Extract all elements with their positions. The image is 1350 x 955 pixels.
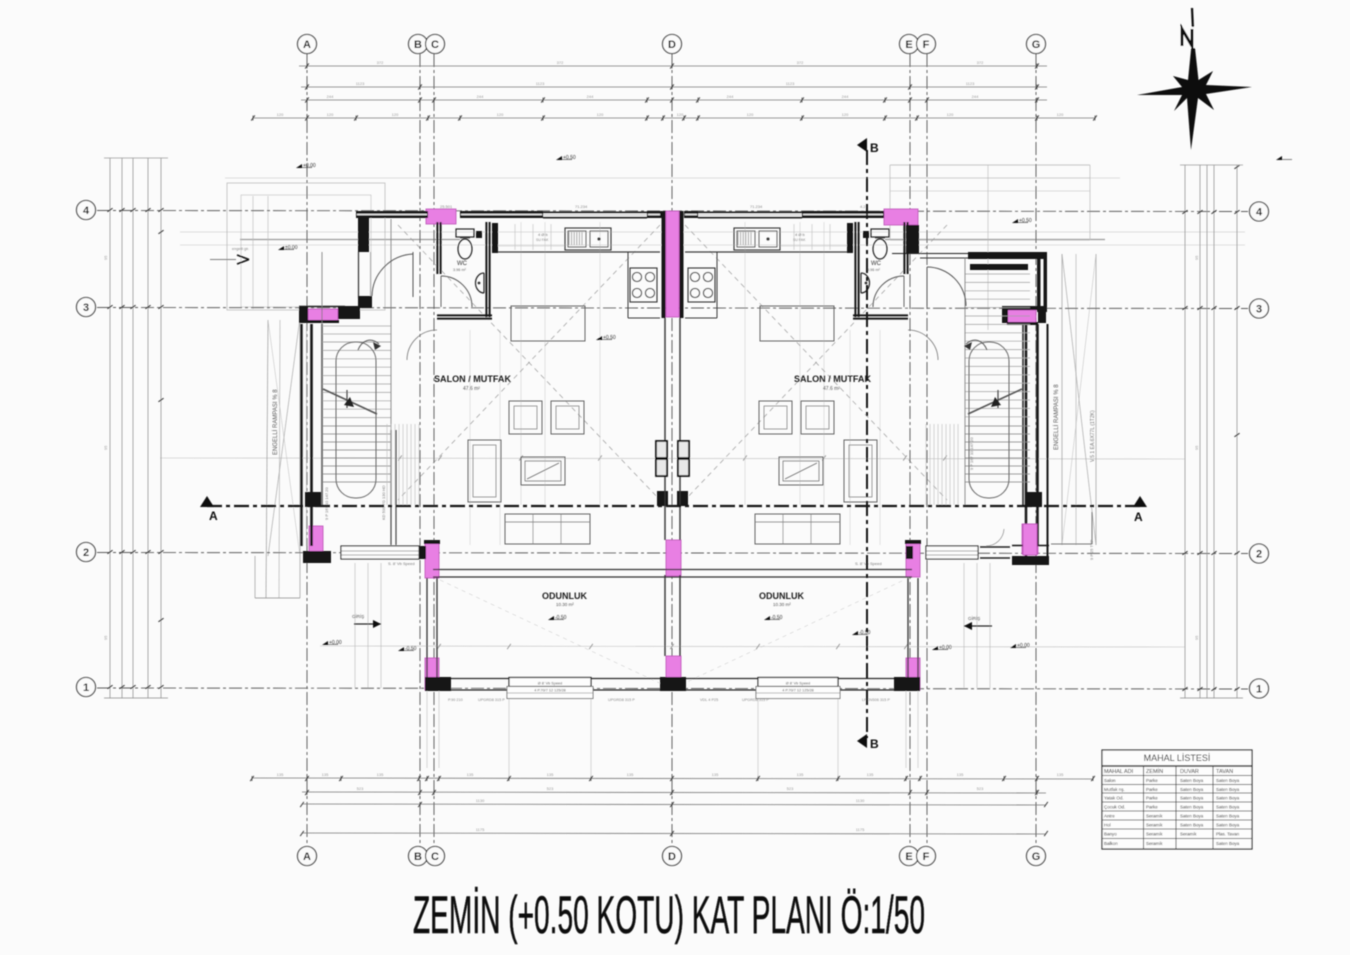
svg-text:-0.50: -0.50 (859, 630, 871, 636)
svg-text:SALON / MUTFAK: SALON / MUTFAK (434, 374, 511, 385)
svg-text:Salon: Salon (1104, 778, 1116, 783)
svg-text:9 P 167 10 147.20: 9 P 167 10 147.20 (324, 487, 329, 520)
svg-text:47.6 m²: 47.6 m² (823, 386, 840, 392)
svg-text:A: A (303, 851, 311, 863)
svg-text:120: 120 (947, 112, 954, 117)
svg-text:C: C (431, 851, 439, 863)
svg-text:ENGELLİ RAMPASI % 8: ENGELLİ RAMPASI % 8 (1053, 384, 1060, 450)
svg-text:4: 4 (1256, 207, 1263, 219)
svg-text:4 Ø b: 4 Ø b (538, 232, 549, 237)
svg-text:Saten Boya: Saten Boya (1216, 778, 1240, 783)
svg-text:120: 120 (327, 112, 334, 117)
svg-text:Ø 8' Vb Speed: Ø 8' Vb Speed (538, 682, 563, 686)
svg-text:135: 135 (957, 772, 964, 777)
svg-text:B: B (414, 39, 422, 51)
svg-text:G: G (1032, 39, 1041, 51)
svg-text:B: B (870, 737, 879, 751)
svg-text:KD 500 TG 130 HD: KD 500 TG 130 HD (381, 485, 386, 520)
svg-text:4 P.70/7 12 125/28: 4 P.70/7 12 125/28 (782, 689, 814, 693)
svg-text:Antre: Antre (1104, 813, 1115, 818)
svg-text:244: 244 (587, 94, 594, 99)
svg-text:244: 244 (727, 94, 734, 99)
svg-text:UPGRD8 315 P: UPGRD8 315 P (608, 698, 635, 702)
svg-text:95: 95 (103, 635, 108, 640)
svg-text:120: 120 (842, 112, 849, 117)
svg-text:95: 95 (1194, 445, 1199, 450)
svg-text:+0.00: +0.00 (1017, 643, 1030, 649)
svg-text:WC: WC (871, 261, 882, 267)
svg-text:3: 3 (1256, 304, 1262, 316)
svg-text:VDL 4 P25: VDL 4 P25 (700, 698, 718, 702)
svg-text:523: 523 (977, 786, 984, 791)
svg-text:4: 4 (83, 205, 90, 217)
svg-text:1123: 1123 (356, 81, 365, 86)
svg-text:1130: 1130 (856, 798, 865, 803)
svg-text:135: 135 (867, 772, 874, 777)
svg-text:Saten Boya: Saten Boya (1180, 778, 1204, 783)
svg-text:135: 135 (467, 772, 474, 777)
svg-text:V.5 1 EA.6X77L (1T2K): V.5 1 EA.6X77L (1T2K) (1090, 410, 1096, 462)
svg-text:Saten Boya: Saten Boya (1216, 804, 1240, 809)
svg-text:2: 2 (83, 547, 89, 559)
svg-text:+0.00: +0.00 (939, 645, 952, 651)
svg-text:+0.50: +0.50 (563, 155, 576, 161)
svg-text:120: 120 (1057, 112, 1064, 117)
svg-text:MAHAL LİSTESİ: MAHAL LİSTESİ (1144, 753, 1211, 763)
svg-text:244: 244 (842, 94, 849, 99)
svg-text:Seramik: Seramik (1180, 831, 1197, 836)
svg-text:Parke: Parke (1146, 787, 1158, 792)
svg-text:135: 135 (322, 772, 329, 777)
svg-text:Parke: Parke (1146, 795, 1158, 800)
svg-text:1175: 1175 (856, 827, 865, 832)
svg-text:523: 523 (547, 786, 554, 791)
svg-text:ENGELLİ RAMPASI % 8: ENGELLİ RAMPASI % 8 (272, 389, 279, 455)
svg-text:Seramik: Seramik (1146, 813, 1163, 818)
svg-text:135: 135 (377, 772, 384, 777)
svg-text:95: 95 (1194, 255, 1199, 260)
svg-text:523: 523 (787, 786, 794, 791)
svg-text:Saten Boya: Saten Boya (1216, 787, 1240, 792)
svg-text:SU FAK: SU FAK (793, 238, 806, 242)
svg-text:Saten Boya: Saten Boya (1180, 795, 1204, 800)
svg-text:+0.00: +0.00 (329, 640, 342, 646)
svg-text:MAHAL ADI: MAHAL ADI (1104, 769, 1134, 775)
svg-text:A: A (303, 39, 311, 51)
svg-text:71.234: 71.234 (575, 204, 588, 209)
svg-text:244: 244 (972, 94, 979, 99)
svg-text:1123: 1123 (536, 81, 545, 86)
svg-text:G: G (1032, 851, 1041, 863)
svg-text:95: 95 (1194, 635, 1199, 640)
svg-text:3.96 m²: 3.96 m² (867, 268, 881, 272)
svg-text:372: 372 (977, 60, 984, 65)
svg-text:10.30 m²: 10.30 m² (773, 602, 791, 607)
svg-text:Saten Boya: Saten Boya (1216, 822, 1240, 827)
svg-text:engelli gir.: engelli gir. (232, 247, 249, 251)
svg-text:120: 120 (392, 112, 399, 117)
svg-text:+0.00: +0.00 (303, 163, 316, 169)
svg-text:+0.50: +0.50 (1019, 218, 1032, 224)
svg-text:135: 135 (547, 772, 554, 777)
svg-text:372: 372 (557, 60, 564, 65)
svg-text:TAVAN: TAVAN (1216, 769, 1233, 775)
svg-text:D: D (668, 851, 676, 863)
svg-text:WC: WC (457, 261, 468, 267)
svg-text:+0.50: +0.50 (603, 335, 616, 341)
svg-text:SU FAK: SU FAK (536, 238, 549, 242)
svg-text:Banyo: Banyo (1104, 831, 1117, 836)
svg-text:120: 120 (277, 112, 284, 117)
svg-text:UPGRD8 315 P: UPGRD8 315 P (742, 698, 769, 702)
svg-text:10.30 m²: 10.30 m² (556, 602, 574, 607)
svg-text:F: F (923, 39, 930, 51)
svg-text:-0.50: -0.50 (405, 646, 417, 652)
svg-text:Saten Boya: Saten Boya (1180, 813, 1204, 818)
svg-text:9 P 167 10 147.20: 9 P 167 10 147.20 (969, 437, 974, 470)
svg-text:Saten Boya: Saten Boya (1216, 841, 1240, 846)
svg-text:120: 120 (747, 112, 754, 117)
svg-text:Mutfak nş.: Mutfak nş. (1104, 787, 1125, 792)
svg-text:Saten Boya: Saten Boya (1180, 787, 1204, 792)
svg-text:-0.50: -0.50 (771, 615, 783, 621)
svg-text:95: 95 (103, 445, 108, 450)
svg-text:Plas. Tavan: Plas. Tavan (1216, 831, 1240, 836)
svg-text:244: 244 (477, 94, 484, 99)
svg-text:372: 372 (797, 60, 804, 65)
svg-text:B: B (414, 851, 422, 863)
svg-text:Saten Boya: Saten Boya (1216, 813, 1240, 818)
svg-text:ODUNLUK: ODUNLUK (542, 591, 587, 602)
svg-text:E: E (905, 851, 912, 863)
svg-text:Çocuk Od.: Çocuk Od. (1104, 804, 1125, 809)
svg-text:3: 3 (83, 302, 89, 314)
svg-text:1123: 1123 (786, 81, 795, 86)
svg-text:1175: 1175 (476, 827, 485, 832)
svg-text:120: 120 (597, 112, 604, 117)
svg-text:Saten Boya: Saten Boya (1180, 804, 1204, 809)
svg-text:ODUNLUK: ODUNLUK (759, 591, 804, 602)
svg-text:Ø 8' Vb Speed: Ø 8' Vb Speed (786, 682, 811, 686)
svg-text:F: F (923, 851, 930, 863)
svg-text:GİRİŞ: GİRİŞ (352, 613, 364, 619)
svg-text:9 P 25 TYP: 9 P 25 TYP (1089, 539, 1094, 560)
svg-text:4.2: 4.2 (860, 204, 866, 209)
svg-text:1: 1 (1256, 684, 1262, 696)
svg-text:DUVAR: DUVAR (1180, 769, 1199, 775)
svg-text:ZEMİN: ZEMİN (1146, 768, 1163, 775)
svg-text:2: 2 (1256, 549, 1262, 561)
svg-text:523: 523 (357, 786, 364, 791)
svg-text:Seramik: Seramik (1146, 831, 1163, 836)
svg-text:Parke: Parke (1146, 804, 1158, 809)
svg-text:Yatak Od.: Yatak Od. (1104, 795, 1124, 800)
svg-text:71.234: 71.234 (750, 204, 763, 209)
svg-text:P.90 210: P.90 210 (448, 698, 463, 702)
svg-text:SALON / MUTFAK: SALON / MUTFAK (794, 374, 871, 385)
svg-text:±0.00: ±0.00 (285, 245, 298, 251)
svg-text:Seramik: Seramik (1146, 841, 1163, 846)
svg-text:UPGRD8 315 P: UPGRD8 315 P (478, 698, 505, 702)
svg-text:95: 95 (103, 255, 108, 260)
svg-text:Seramik: Seramik (1146, 822, 1163, 827)
svg-text:244: 244 (327, 94, 334, 99)
svg-text:Hol: Hol (1104, 822, 1111, 827)
svg-text:4 P.70/7 12 125/28: 4 P.70/7 12 125/28 (534, 689, 566, 693)
svg-text:3.96 m²: 3.96 m² (453, 268, 467, 272)
svg-text:Parke: Parke (1146, 778, 1158, 783)
svg-text:4 Ø b: 4 Ø b (795, 232, 806, 237)
svg-text:A: A (1134, 510, 1143, 524)
svg-text:135: 135 (712, 772, 719, 777)
svg-text:1130: 1130 (476, 798, 485, 803)
svg-text:Saten Boya: Saten Boya (1180, 822, 1204, 827)
svg-text:Balkon: Balkon (1104, 841, 1118, 846)
svg-text:135: 135 (627, 772, 634, 777)
svg-text:S. 8' Vb Speed: S. 8' Vb Speed (388, 561, 415, 566)
svg-text:B: B (870, 141, 879, 155)
svg-text:-0.50: -0.50 (555, 615, 567, 621)
svg-text:Saten Boya: Saten Boya (1216, 795, 1240, 800)
svg-text:25.501: 25.501 (440, 204, 453, 209)
svg-text:ZEMİN (+0.50 KOTU) KAT PLANI: ZEMİN (+0.50 KOTU) KAT PLANI Ö:1/50 (413, 886, 925, 945)
svg-text:E: E (905, 39, 912, 51)
svg-text:120: 120 (677, 112, 684, 117)
svg-text:D: D (668, 39, 676, 51)
svg-text:1: 1 (83, 682, 89, 694)
svg-text:135: 135 (1057, 772, 1064, 777)
svg-text:1123: 1123 (966, 81, 975, 86)
svg-text:135: 135 (277, 772, 284, 777)
svg-text:135: 135 (797, 772, 804, 777)
svg-text:A: A (209, 509, 218, 523)
svg-text:47.6 m²: 47.6 m² (463, 386, 480, 392)
svg-text:120: 120 (497, 112, 504, 117)
svg-text:GİRİŞ: GİRİŞ (968, 615, 980, 621)
svg-text:C: C (431, 39, 439, 51)
svg-text:S. 8' Vb Speed: S. 8' Vb Speed (855, 561, 882, 566)
svg-text:372: 372 (377, 60, 384, 65)
